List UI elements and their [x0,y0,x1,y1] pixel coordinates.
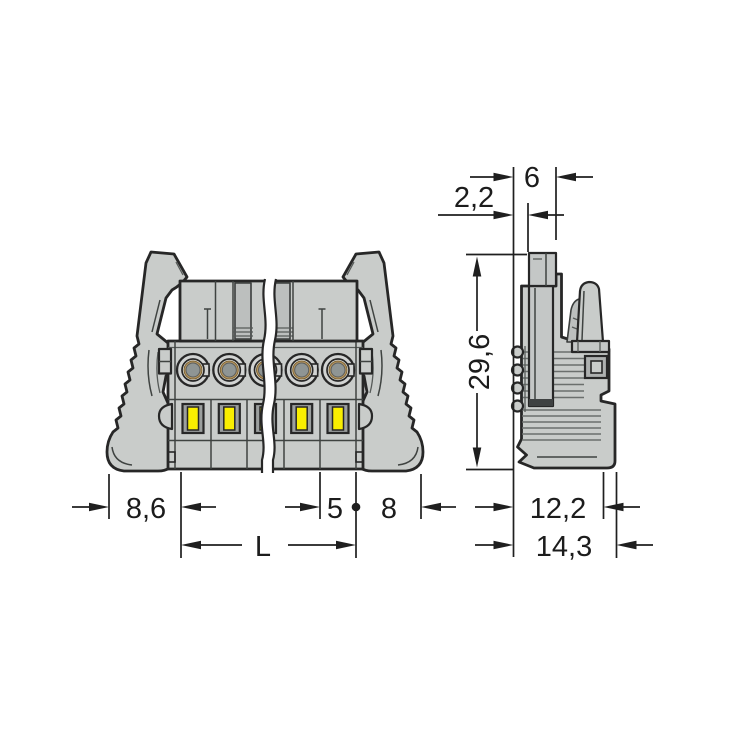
side-top-cap [529,253,556,286]
front-view: 8,6 5 8 L [72,252,456,563]
dim-label-left-lever-offset: 8,6 [126,493,166,525]
dim-label-depth-total: 14,3 [536,531,592,563]
dim-label-depth-inner: 12,2 [530,493,586,525]
pole-window-4 [291,404,312,433]
pole-contact-1 [177,354,209,386]
dimension-right-lever-offset: 8 [381,474,456,525]
technical-drawing-page: 8,6 5 8 L [0,0,750,750]
side-latch-window [585,356,607,378]
pole-window-5 [328,404,349,433]
pole-window-1 [183,404,204,433]
dimension-height: 29,6 [464,255,527,470]
pole-contact-5 [322,354,354,386]
side-lever [567,282,609,352]
connector-dimension-drawing: 8,6 5 8 L [0,0,750,750]
dim-label-pole-pitch: 5 [327,493,343,525]
dimension-depth-inner: 12,2 [475,472,640,525]
dim-label-total-length: L [255,531,271,563]
latch-recess-left [235,283,251,339]
side-view: 6 2,2 29,6 12,2 [438,162,653,563]
break-lines [261,279,276,473]
dim-label-height: 29,6 [464,334,496,390]
pole-window-2 [219,404,240,433]
dim-label-right-lever-offset: 8 [381,493,397,525]
dim-label-top-width: 6 [524,162,540,194]
dimension-total-length: L [181,531,356,563]
dim-label-top-inset: 2,2 [454,182,494,214]
dimension-top-inset: 2,2 [438,182,564,252]
pole-contact-4 [286,354,318,386]
pole-contact-2 [213,354,245,386]
side-center-blade [529,286,553,406]
